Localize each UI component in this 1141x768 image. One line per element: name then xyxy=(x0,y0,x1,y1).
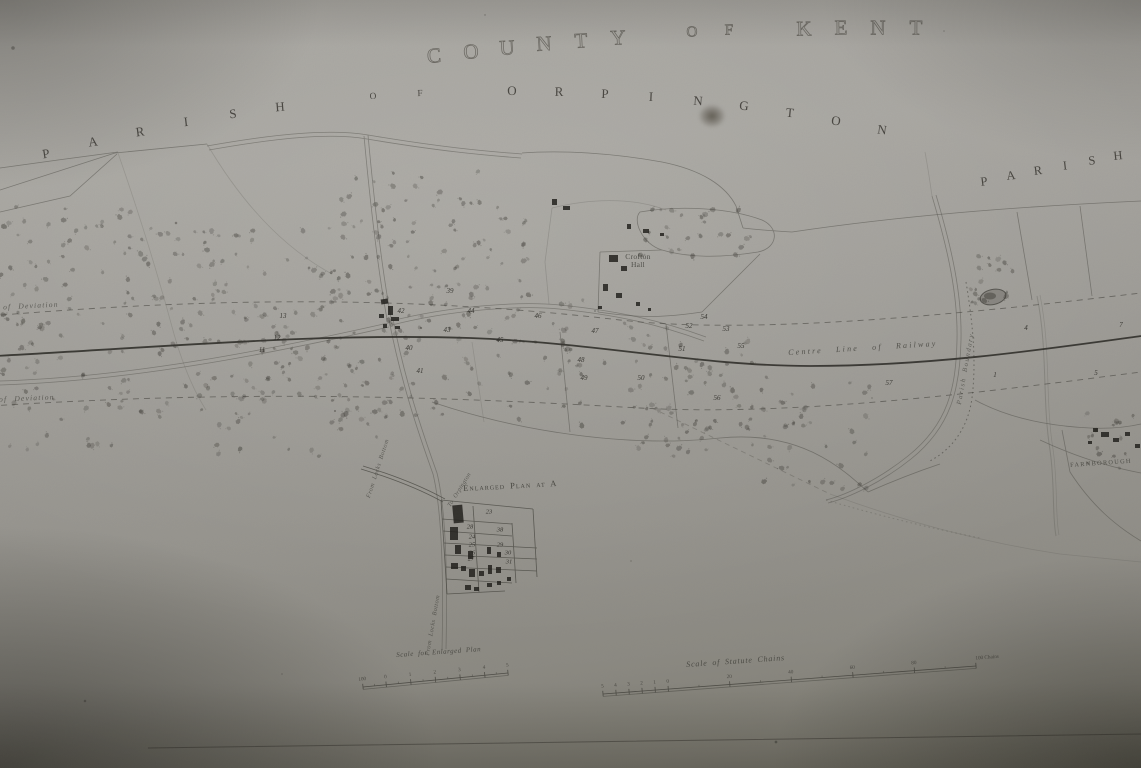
field-number-53: 53 xyxy=(723,325,730,333)
field-number-41: 41 xyxy=(417,367,424,375)
label-scale-enlarged-plan: Scale for Enlarged Plan xyxy=(396,646,481,660)
enlarged-plot-number-28: 28 xyxy=(467,524,474,531)
field-number-48: 48 xyxy=(578,356,585,364)
title-parish-of-orpington-letter: I xyxy=(649,88,654,104)
title-parish-of-orpington-letter: R xyxy=(134,123,145,140)
title-parish-right-letter: P xyxy=(980,174,989,190)
photograph-of-railway-plan-map: 10001234554321020406080100 Chains COUNTY… xyxy=(0,0,1141,768)
title-county-of-kent-letter: C xyxy=(426,43,442,69)
field-number-54: 54 xyxy=(701,313,708,321)
field-number-12: 12 xyxy=(274,334,281,342)
title-parish-of-orpington-letter: G xyxy=(738,98,749,115)
title-parish-right-letter: I xyxy=(1062,158,1068,173)
title-parish-right-letter: R xyxy=(1033,163,1043,179)
field-number-11: 11 xyxy=(259,346,265,354)
field-number-49: 49 xyxy=(581,374,588,382)
title-county-of-kent-letter: N xyxy=(871,15,886,40)
field-number-42: 42 xyxy=(398,307,405,315)
enlarged-plot-number-38: 38 xyxy=(497,527,504,534)
enlarged-plot-number-30: 30 xyxy=(505,550,512,557)
field-number-39: 39 xyxy=(447,287,454,295)
title-parish-of-orpington-letter: S xyxy=(229,106,238,123)
title-parish-of-orpington: PARISHOFORPINGTON xyxy=(0,0,1141,768)
title-parish-of-orpington-letter: N xyxy=(692,92,702,109)
title-parish-of-orpington-letter: P xyxy=(601,85,609,101)
enlarged-plot-number-24: 24 xyxy=(469,534,476,541)
label-enlarged-plan-title: Enlarged Plan at A xyxy=(463,479,558,493)
field-number-13: 13 xyxy=(280,312,287,320)
title-parish-right: PARISH xyxy=(0,0,1141,768)
title-parish-of-orpington-letter: H xyxy=(274,99,285,116)
label-limit-of-deviation-lower: Limit of Deviation xyxy=(0,393,55,405)
title-county-of-kent-letter: O xyxy=(462,39,479,65)
title-parish-right-letter: S xyxy=(1087,153,1096,169)
enlarged-plot-number-23: 23 xyxy=(486,509,493,516)
field-number-40: 40 xyxy=(406,344,413,352)
enlarged-plot-number-27: 27 xyxy=(468,556,475,563)
field-number-7: 7 xyxy=(1119,321,1123,329)
field-number-1: 1 xyxy=(993,371,997,379)
title-parish-of-orpington-letter: R xyxy=(554,84,563,100)
field-number-5: 5 xyxy=(1094,369,1098,377)
enlarged-plot-number-25: 25 xyxy=(469,542,476,549)
field-number-50: 50 xyxy=(638,374,645,382)
title-parish-of-orpington-letter: O xyxy=(508,83,517,99)
field-number-44: 44 xyxy=(468,307,475,315)
field-number-55: 55 xyxy=(738,342,745,350)
title-parish-of-orpington-letter: I xyxy=(183,114,189,130)
title-county-of-kent-letter: K xyxy=(796,16,812,41)
title-parish-of-orpington-letter: O xyxy=(830,112,841,129)
title-county-of-kent-letter: E xyxy=(835,16,848,41)
field-number-4: 4 xyxy=(1024,324,1028,332)
title-parish-of-orpington-letter: T xyxy=(785,105,794,122)
field-number-45: 45 xyxy=(497,336,504,344)
title-county-of-kent-letter: F xyxy=(725,23,734,40)
title-county-of-kent-letter: O xyxy=(686,24,697,41)
label-scale-statute-chains: Scale of Statute Chains xyxy=(686,654,785,670)
enlarged-plot-number-31: 31 xyxy=(506,559,513,566)
title-parish-of-orpington-letter: N xyxy=(876,121,887,138)
title-county-of-kent-letter: T xyxy=(910,15,923,40)
label-parish-boundary: Parish Boundary xyxy=(956,332,976,405)
field-number-51: 51 xyxy=(679,345,686,353)
enlarged-plot-number-29: 29 xyxy=(497,542,504,549)
title-parish-of-orpington-letter: P xyxy=(41,146,51,163)
title-parish-right-letter: H xyxy=(1113,148,1124,164)
label-crofton-hall: Crofton Hall xyxy=(620,253,656,270)
title-county-of-kent: COUNTYOFKENT xyxy=(0,0,1141,768)
title-parish-of-orpington-letter: O xyxy=(369,92,376,102)
field-number-43: 43 xyxy=(444,326,451,334)
field-number-57: 57 xyxy=(886,379,893,387)
label-limit-of-deviation-upper: Limit of Deviation xyxy=(0,301,59,314)
title-county-of-kent-letter: N xyxy=(536,31,553,57)
field-number-56: 56 xyxy=(714,394,721,402)
title-county-of-kent-letter: T xyxy=(574,28,588,54)
title-parish-of-orpington-letter: F xyxy=(417,89,423,99)
title-parish-of-orpington-letter: A xyxy=(87,134,99,151)
field-number-46: 46 xyxy=(535,312,542,320)
title-parish-right-letter: A xyxy=(1006,168,1017,184)
label-from-locks-bottom-1: From Locks Bottom xyxy=(366,439,391,500)
map-labels-layer: COUNTYOFKENTPARISHOFORPINGTONPARISHCentr… xyxy=(0,0,1141,768)
label-centre-line-of-railway: Centre Line of Railway xyxy=(788,340,938,358)
field-number-52: 52 xyxy=(686,322,693,330)
field-number-47: 47 xyxy=(592,327,599,335)
title-county-of-kent-letter: Y xyxy=(610,25,626,51)
title-county-of-kent-letter: U xyxy=(499,35,516,61)
label-farnborough: FARNBOROUGH xyxy=(1070,459,1132,470)
